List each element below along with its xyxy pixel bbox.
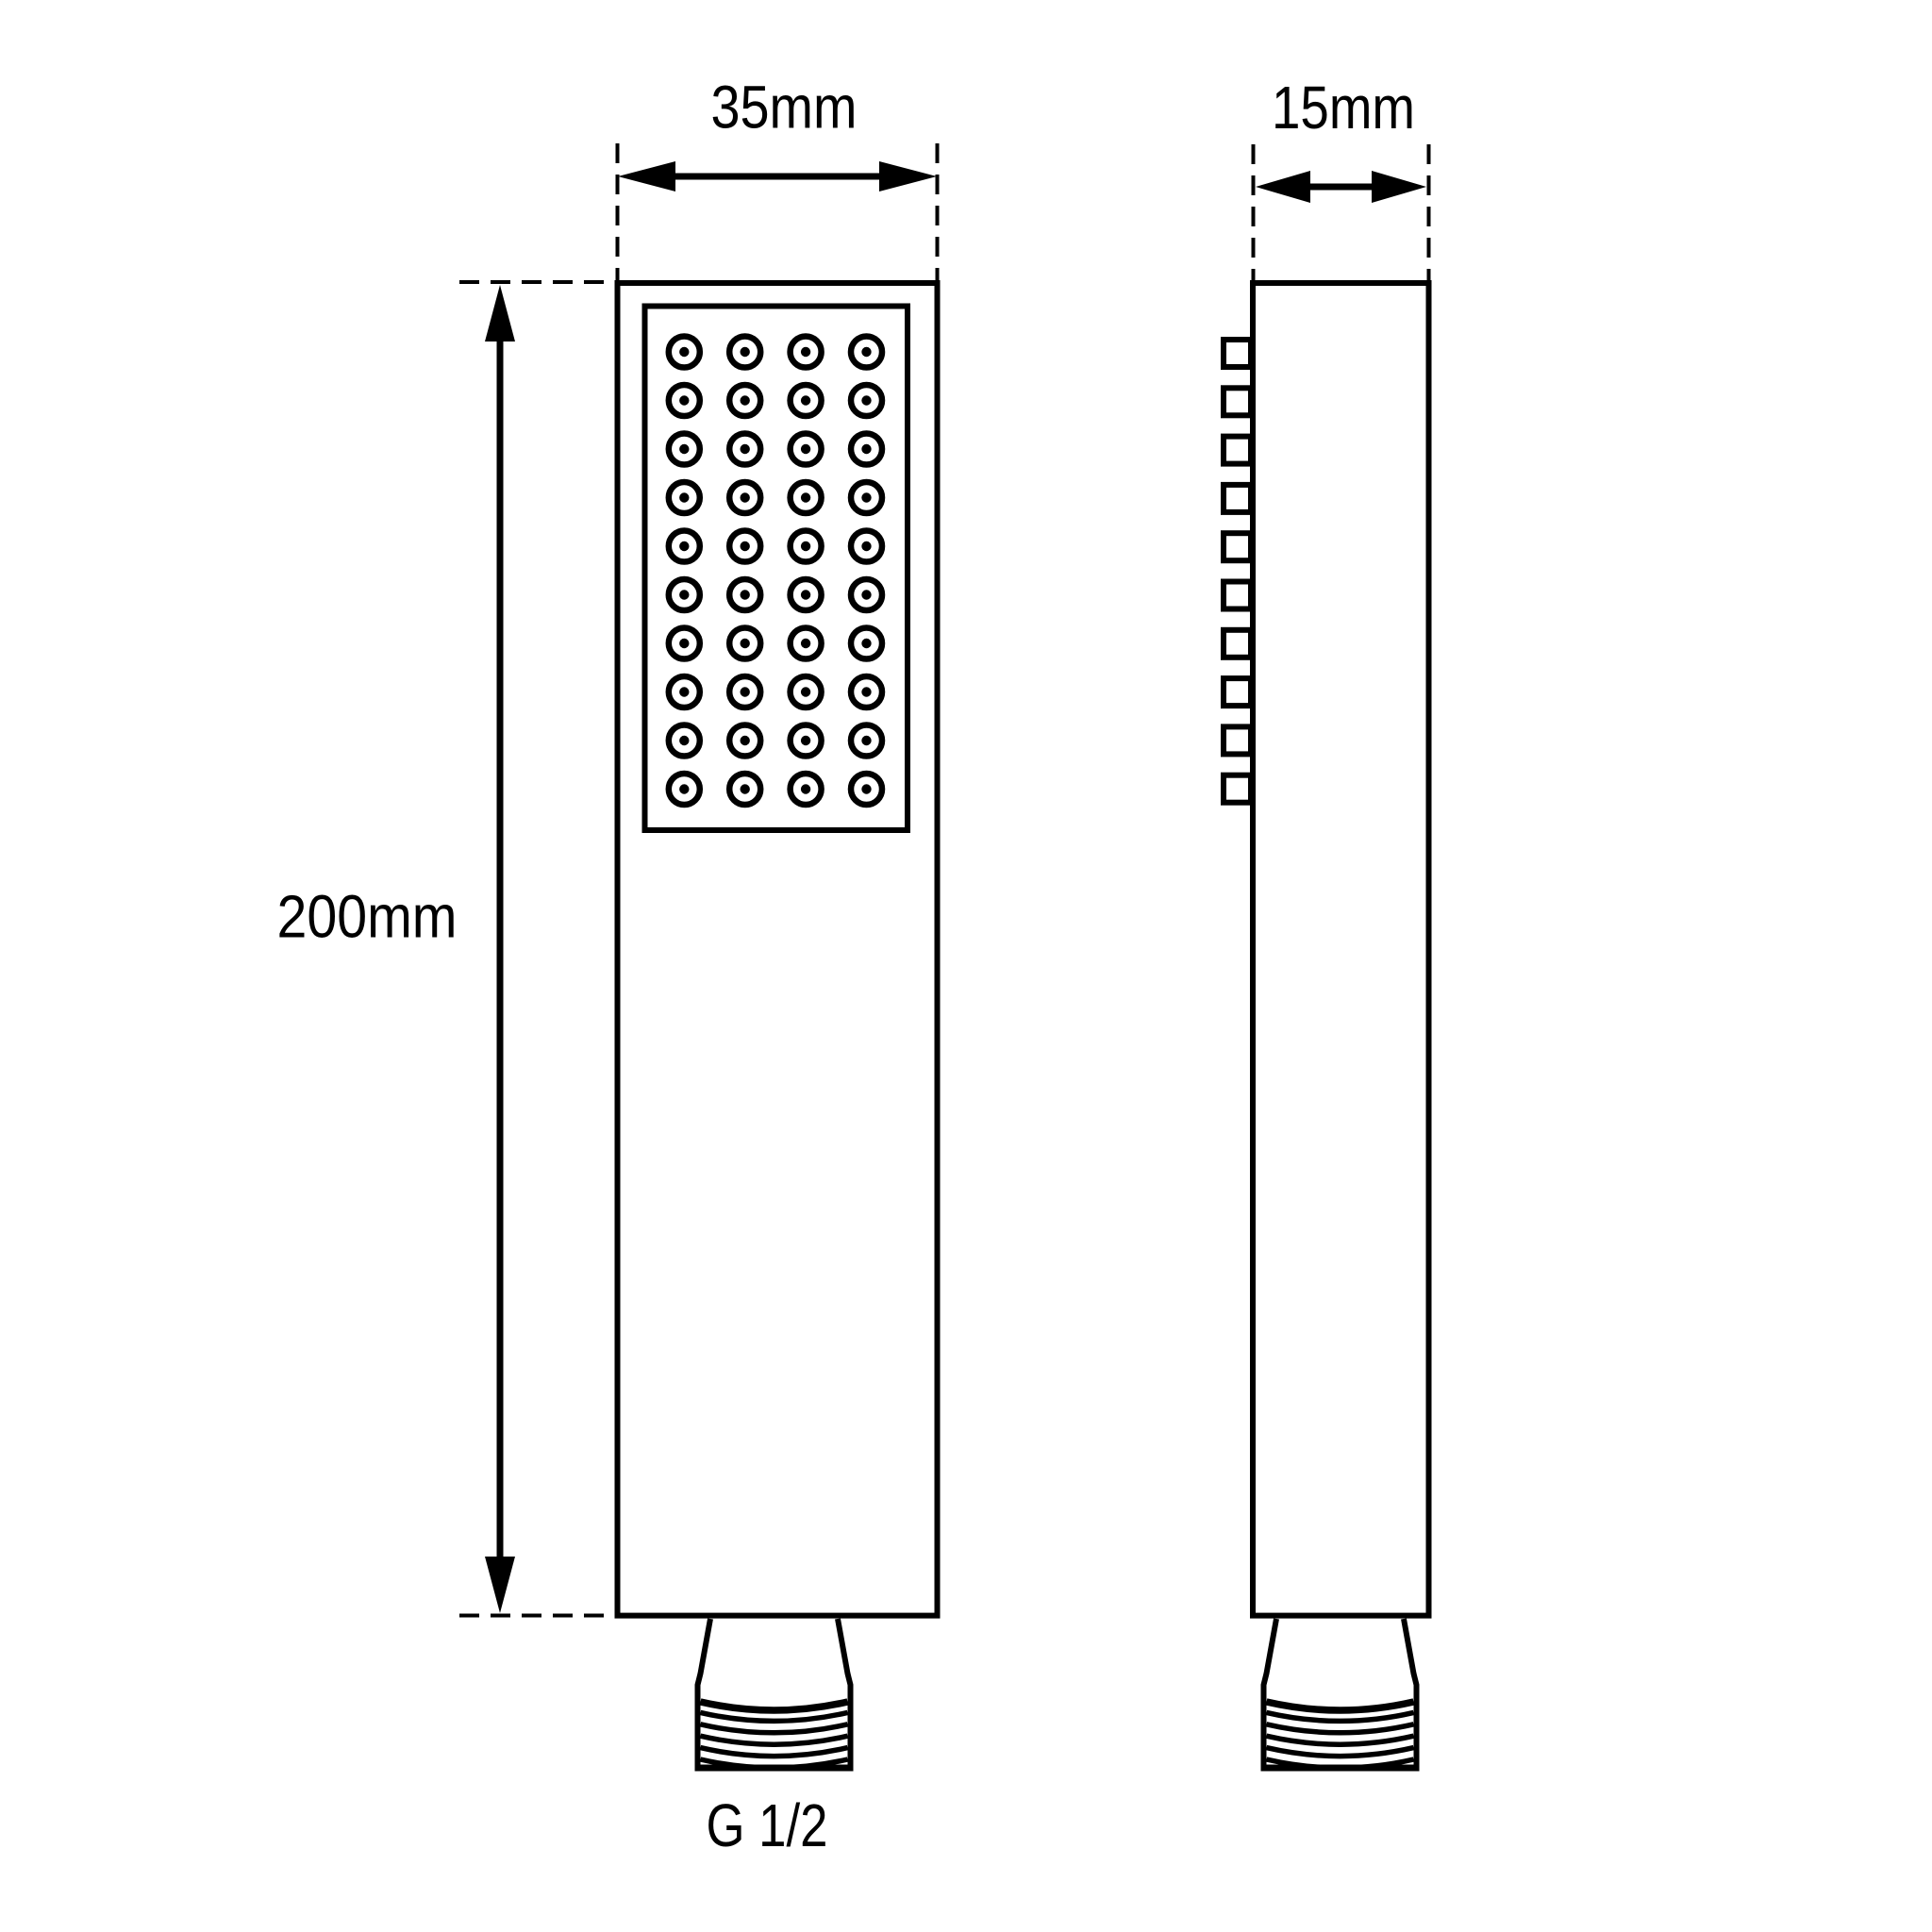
svg-text:G 1/2: G 1/2	[707, 1791, 828, 1859]
svg-text:35mm: 35mm	[711, 74, 858, 142]
svg-text:200mm: 200mm	[277, 883, 458, 951]
svg-text:15mm: 15mm	[1272, 74, 1415, 142]
